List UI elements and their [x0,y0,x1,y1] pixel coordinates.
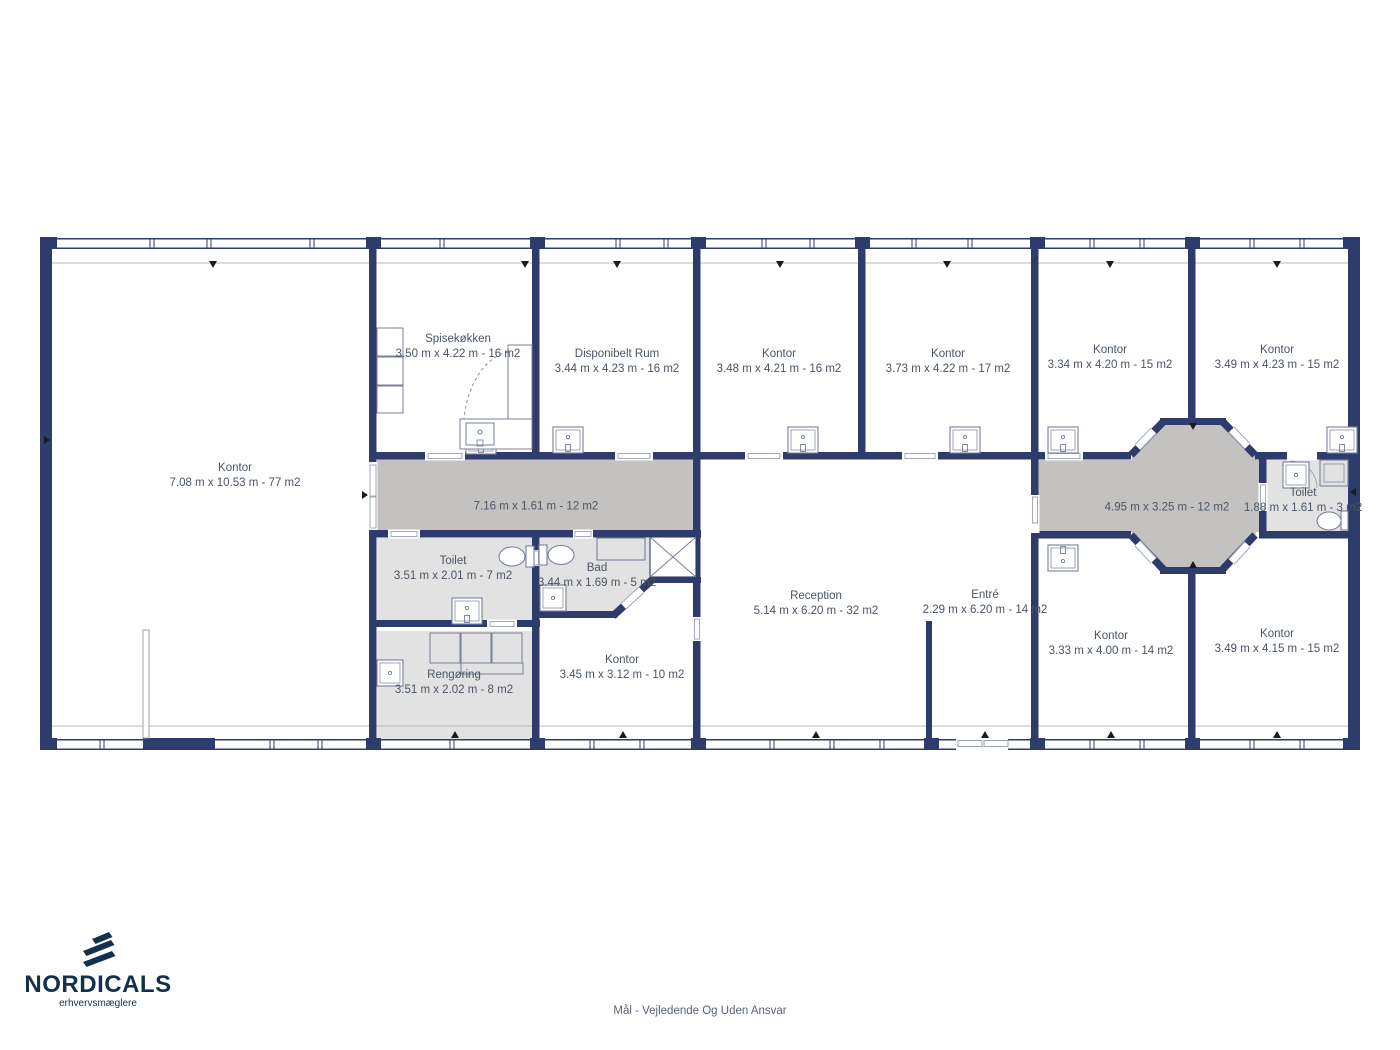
shaft-x [650,537,696,577]
nordicals-logo: NORDICALS erhvervsmæglere [30,928,166,1010]
room-dimensions: 3.51 m x 2.01 m - 7 m2 [394,569,512,584]
room-name: Bad [538,561,656,576]
room-name: Disponibelt Rum [555,347,680,362]
window-band-top [40,237,1360,249]
room-dimensions: 3.34 m x 4.20 m - 15 m2 [1048,358,1173,373]
room-label-reception: Reception 5.14 m x 6.20 m - 32 m2 [754,589,879,619]
room-label-bad: Bad 3.44 m x 1.69 m - 5 m2 [538,561,656,591]
room-name: Spisekøkken [396,332,521,347]
room-dimensions: 3.49 m x 4.23 m - 15 m2 [1215,358,1340,373]
room-dimensions: 3.44 m x 1.69 m - 5 m2 [538,576,656,591]
floor-plan [0,0,1400,1050]
room-dimensions: 2.29 m x 6.20 m - 14 m2 [923,603,1048,618]
room-name: Rengøring [395,668,513,683]
glass-partition [143,630,149,738]
nordicals-logo-icon [74,928,122,972]
room-name: Kontor [169,461,300,476]
room-name: Kontor [1215,627,1340,642]
room-dimensions: 7.16 m x 1.61 m - 12 m2 [474,500,599,515]
window-band-bottom [40,738,1360,751]
room-label-toilet-right: Toilet 1.88 m x 1.61 m - 3 m2 [1244,486,1362,516]
room-name: Entré [923,588,1048,603]
room-label-spisekokken: Spisekøkken 3.50 m x 4.22 m - 16 m2 [396,332,521,362]
room-name: Kontor [1048,343,1173,358]
room-dimensions: 3.50 m x 4.22 m - 16 m2 [396,347,521,362]
room-name: Kontor [886,347,1011,362]
room-label-entre: Entré 2.29 m x 6.20 m - 14 m2 [923,588,1048,618]
logo-text: NORDICALS [24,972,171,998]
room-dimensions: 3.33 m x 4.00 m - 14 m2 [1049,644,1174,659]
room-dimensions: 3.45 m x 3.12 m - 10 m2 [560,668,685,683]
floorplan-page: Kontor 7.08 m x 10.53 m - 77 m2 Spisekøk… [0,0,1400,1050]
room-label-kontor-15a: Kontor 3.34 m x 4.20 m - 15 m2 [1048,343,1173,373]
room-dimensions: 3.49 m x 4.15 m - 15 m2 [1215,642,1340,657]
room-label-disponibelt-rum: Disponibelt Rum 3.44 m x 4.23 m - 16 m2 [555,347,680,377]
room-label-kontor-77: Kontor 7.08 m x 10.53 m - 77 m2 [169,461,300,491]
room-label-toilet-left: Toilet 3.51 m x 2.01 m - 7 m2 [394,554,512,584]
room-dimensions: 5.14 m x 6.20 m - 32 m2 [754,604,879,619]
room-dimensions: 1.88 m x 1.61 m - 3 m2 [1244,501,1362,516]
room-dimensions: 3.48 m x 4.21 m - 16 m2 [717,362,842,377]
room-dimensions: 4.95 m x 3.25 m - 12 m2 [1105,501,1230,516]
room-dimensions: 3.44 m x 4.23 m - 16 m2 [555,362,680,377]
corridor-fill [377,459,693,531]
entrance-door [956,738,1008,751]
room-name: Kontor [717,347,842,362]
room-dimensions: 3.51 m x 2.02 m - 8 m2 [395,683,513,698]
room-label-corridor: 7.16 m x 1.61 m - 12 m2 [474,500,599,515]
room-name: Reception [754,589,879,604]
room-label-rengoring: Rengøring 3.51 m x 2.02 m - 8 m2 [395,668,513,698]
room-label-kontor-17: Kontor 3.73 m x 4.22 m - 17 m2 [886,347,1011,377]
room-label-kontor-15c: Kontor 3.49 m x 4.15 m - 15 m2 [1215,627,1340,657]
room-label-kontor-15b: Kontor 3.49 m x 4.23 m - 15 m2 [1215,343,1340,373]
room-label-hall: 4.95 m x 3.25 m - 12 m2 [1105,501,1230,516]
room-name: Toilet [1244,486,1362,501]
room-dimensions: 3.73 m x 4.22 m - 17 m2 [886,362,1011,377]
room-label-kontor-14: Kontor 3.33 m x 4.00 m - 14 m2 [1049,629,1174,659]
footer-disclaimer: Mål - Vejledende Og Uden Ansvar [0,1005,1400,1017]
room-name: Toilet [394,554,512,569]
room-label-kontor-10: Kontor 3.45 m x 3.12 m - 10 m2 [560,653,685,683]
room-name: Kontor [560,653,685,668]
room-label-kontor-16: Kontor 3.48 m x 4.21 m - 16 m2 [717,347,842,377]
room-name: Kontor [1049,629,1174,644]
room-dimensions: 7.08 m x 10.53 m - 77 m2 [169,476,300,491]
room-name: Kontor [1215,343,1340,358]
